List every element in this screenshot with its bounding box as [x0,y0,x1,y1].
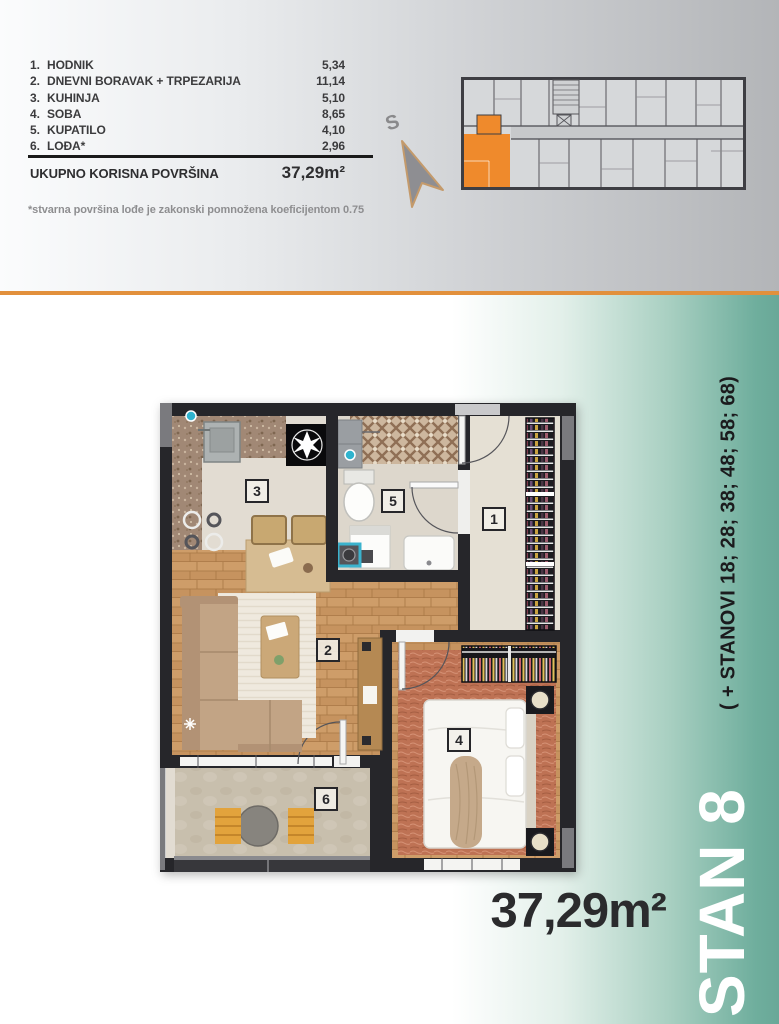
divider-line [28,155,373,158]
loggia-table [238,806,278,846]
room-area: 2,96 [293,139,345,153]
room-name: KUPATILO [47,123,293,137]
total-value: 37,29m² [282,163,345,183]
room-label-hodnik: 1 [482,507,506,531]
header-section: 1. HODNIK 5,34 2. DNEVNI BORAVAK + TRPEZ… [0,0,779,291]
floorplan-drawing [158,400,578,878]
list-item: 2. DNEVNI BORAVAK + TRPEZARIJA 11,14 [30,74,345,90]
hall-wardrobe [526,418,554,630]
room-label-kuhinja: 3 [245,479,269,503]
total-label: UKUPNO KORISNA POVRŠINA [30,166,282,181]
room-label-dnevni-boravak: 2 [316,638,340,662]
list-item: 3. KUHINJA 5,10 [30,91,345,107]
loggia [215,806,314,846]
room-number: 2. [30,74,47,88]
total-area-large: 37,29m² [400,883,666,939]
plan-section: 1 2 3 4 5 6 ( + STANOVI 18; 28; 38; 48; … [0,295,779,1024]
room-name: DNEVNI BORAVAK + TRPEZARIJA [47,74,293,88]
floor-drain-icon [338,544,360,566]
list-item: 1. HODNIK 5,34 [30,58,345,74]
room-number: 6. [30,139,47,153]
room-label-kupatilo: 5 [381,489,405,513]
fan-panel-icon [286,424,328,466]
room-name: SOBA [47,107,293,121]
room-number: 4. [30,107,47,121]
room-name: HODNIK [47,58,293,72]
bed [424,700,536,848]
room-number: 1. [30,58,47,72]
room-area: 5,34 [293,58,345,72]
room-label-lodja: 6 [314,787,338,811]
room-area: 11,14 [293,74,345,88]
entry-threshold [455,404,500,415]
room-number: 3. [30,91,47,105]
loggia-sliding-door [174,856,370,872]
brochure-page: 1. HODNIK 5,34 2. DNEVNI BORAVAK + TRPEZ… [0,0,779,1024]
room-area: 5,10 [293,91,345,105]
bedroom-wardrobe [462,646,556,682]
room-number: 5. [30,123,47,137]
room-name: KUHINJA [47,91,293,105]
total-area-row: UKUPNO KORISNA POVRŠINA 37,29m² [30,163,345,183]
room-label-soba: 4 [447,728,471,752]
room-area: 8,65 [293,107,345,121]
room-area-list: 1. HODNIK 5,34 2. DNEVNI BORAVAK + TRPEZ… [30,58,345,156]
building-floorplan-icon [461,77,746,190]
tv-sideboard [358,638,382,750]
room-area: 4,10 [293,123,345,137]
toilet-icon [344,470,374,521]
compass: S [380,112,450,212]
unit-title: STAN 8 [682,747,762,1017]
building-overview [461,77,746,195]
coffee-table [261,616,299,678]
list-item: 4. SOBA 8,65 [30,107,345,123]
related-units-label: ( + STANOVI 18; 28; 38; 48; 58; 68) [712,367,746,719]
room-name: LOĐA* [47,139,293,153]
loggia-footnote: *stvarna površina lođe je zakonski pomno… [28,204,364,216]
plumbing-dot-icon [186,411,196,421]
blanket [450,756,482,848]
apartment-floorplan: 1 2 3 4 5 6 [158,400,578,878]
list-item: 5. KUPATILO 4,10 [30,123,345,139]
sink-icon [404,536,454,570]
bedroom-window [424,858,520,870]
list-item: 6. LOĐA* 2,96 [30,139,345,155]
